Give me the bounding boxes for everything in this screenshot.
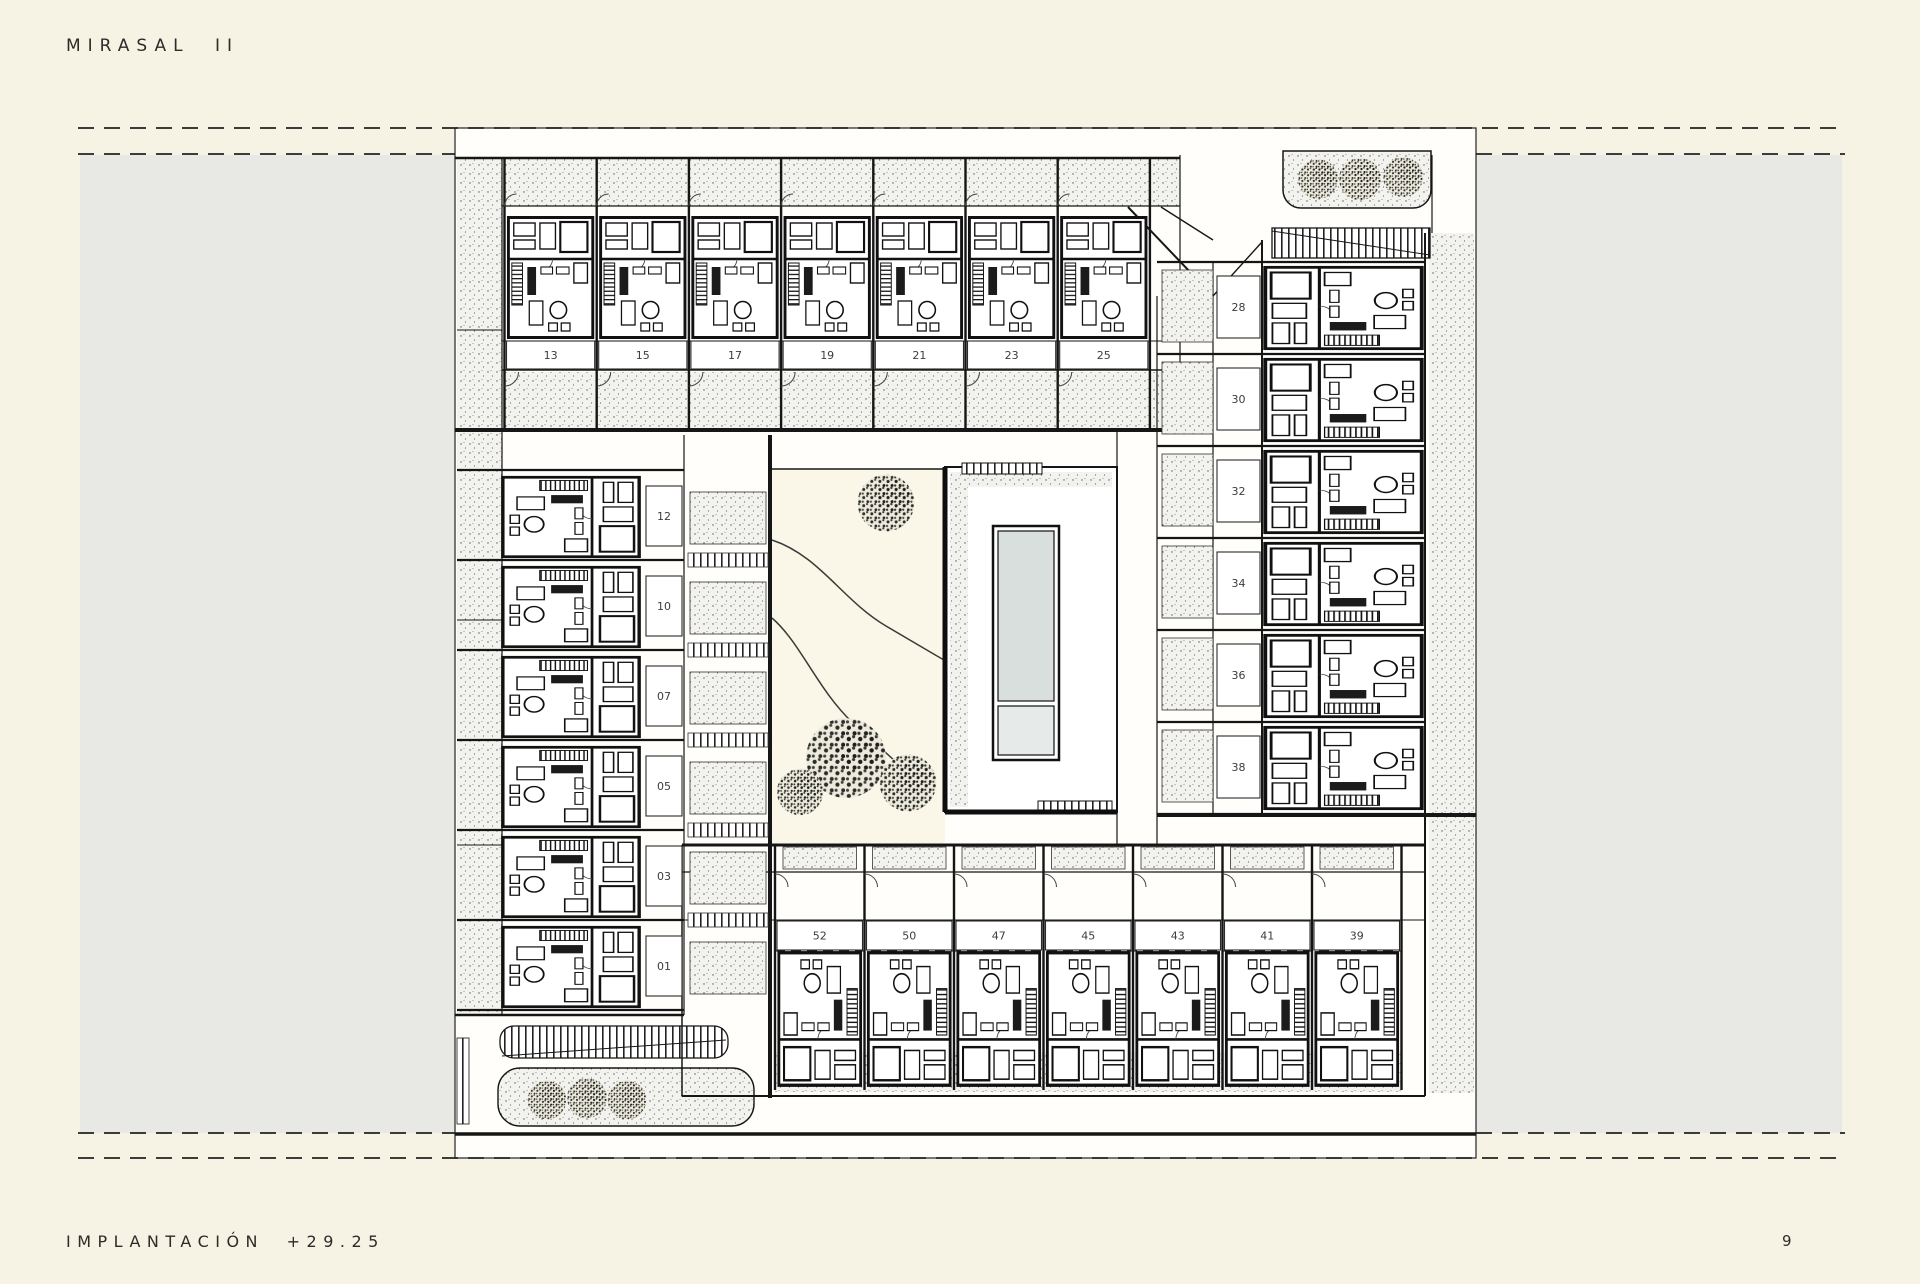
tree	[608, 1081, 647, 1120]
left-garden-strip	[457, 158, 502, 1015]
unit-floorplan-left	[503, 927, 639, 1006]
patio-cell	[1231, 847, 1305, 869]
tree	[567, 1078, 607, 1118]
patio-cell	[962, 847, 1036, 869]
unit-number: 13	[544, 349, 558, 362]
unit-number: 43	[1171, 930, 1185, 943]
unit-floorplan-left	[503, 567, 639, 646]
unit-number: 25	[1097, 349, 1111, 362]
patio-cell	[690, 492, 766, 544]
unit-floorplan-left	[503, 837, 639, 916]
unit-floorplan-top	[969, 218, 1053, 338]
patio-cell	[1162, 638, 1213, 710]
pool-water	[998, 531, 1054, 701]
unit-floorplan-top	[877, 218, 961, 338]
unit-floorplan-right	[1265, 359, 1421, 440]
unit-floorplan-bottom	[958, 953, 1040, 1085]
unit-number: 41	[1260, 930, 1274, 943]
patio-cell	[873, 847, 947, 869]
patio-cell	[783, 847, 857, 869]
unit-number: 17	[728, 349, 742, 362]
unit-number: 28	[1232, 301, 1246, 314]
top-lower-strip	[502, 372, 1180, 428]
unit-floorplan-right	[1265, 635, 1421, 716]
unit-number: 03	[657, 870, 671, 883]
patio-cell	[690, 852, 766, 904]
unit-number: 52	[813, 930, 827, 943]
unit-number: 23	[1005, 349, 1019, 362]
top-patio-strip	[502, 158, 1180, 206]
unit-floorplan-bottom	[1047, 953, 1129, 1085]
pool-pavilion	[945, 463, 1117, 812]
right-parcel-band	[1476, 155, 1842, 1133]
unit-floorplan-left	[503, 477, 639, 556]
unit-floorplan-left	[503, 657, 639, 736]
right-garden-strip	[1429, 233, 1474, 1093]
unit-floorplan-bottom	[779, 953, 861, 1085]
sheet-title: MIRASAL II	[66, 36, 239, 56]
unit-floorplan-right	[1265, 267, 1421, 348]
unit-number: 39	[1350, 930, 1364, 943]
unit-floorplan-left	[503, 747, 639, 826]
drawing-sheet: 1315171921232552504745434139121007050301…	[0, 0, 1920, 1280]
patio-cell	[1162, 546, 1213, 618]
patio-cell	[1162, 362, 1213, 434]
unit-floorplan-bottom	[1137, 953, 1219, 1085]
left-parcel-band	[80, 155, 455, 1133]
tree	[528, 1081, 567, 1120]
unit-number: 15	[636, 349, 650, 362]
unit-floorplan-right	[1265, 451, 1421, 532]
patio-cell	[690, 942, 766, 994]
unit-number: 05	[657, 780, 671, 793]
unit-number: 32	[1232, 485, 1246, 498]
patio-cell	[1320, 847, 1394, 869]
patio-cell	[1162, 454, 1213, 526]
patio-cell	[1162, 270, 1213, 342]
unit-number: 47	[992, 930, 1006, 943]
stair-hatch	[688, 553, 768, 567]
north-ramp	[1272, 228, 1430, 258]
unit-number: 30	[1232, 393, 1246, 406]
unit-floorplan-right	[1265, 727, 1421, 808]
unit-floorplan-top	[508, 218, 592, 338]
tree	[880, 755, 937, 812]
patio-cell	[690, 762, 766, 814]
tree	[777, 769, 823, 815]
stair-hatch	[688, 823, 768, 837]
unit-floorplan-top	[1062, 218, 1146, 338]
unit-floorplan-top	[693, 218, 777, 338]
stair-hatch	[688, 733, 768, 747]
site-plan-drawing: 1315171921232552504745434139121007050301…	[0, 0, 1920, 1280]
unit-number: 07	[657, 690, 671, 703]
patio-cell	[1162, 730, 1213, 802]
unit-floorplan-bottom	[1226, 953, 1308, 1085]
tree	[1298, 159, 1338, 199]
unit-number: 10	[657, 600, 671, 613]
unit-number: 36	[1232, 669, 1246, 682]
tree	[858, 475, 915, 532]
patio-cell	[1141, 847, 1215, 869]
page-number: 9	[1782, 1232, 1794, 1250]
patio-cell	[690, 672, 766, 724]
unit-number: 19	[820, 349, 834, 362]
pool-shallow	[998, 706, 1054, 755]
patio-cell	[1052, 847, 1126, 869]
unit-floorplan-bottom	[1316, 953, 1398, 1085]
unit-number: 38	[1232, 761, 1246, 774]
stair-hatch	[688, 643, 768, 657]
unit-number: 50	[902, 930, 916, 943]
unit-floorplan-top	[785, 218, 869, 338]
stair-hatch	[688, 913, 768, 927]
sheet-caption: IMPLANTACIÓN +29.25	[66, 1232, 385, 1251]
unit-floorplan-bottom	[868, 953, 950, 1085]
north-planting-bed	[1283, 151, 1431, 208]
unit-number: 34	[1232, 577, 1246, 590]
unit-floorplan-right	[1265, 543, 1421, 624]
tree	[1383, 157, 1423, 197]
unit-number: 12	[657, 510, 671, 523]
unit-number: 21	[912, 349, 926, 362]
patio-cell	[690, 582, 766, 634]
tree	[1339, 158, 1381, 200]
unit-number: 45	[1081, 930, 1095, 943]
unit-number: 01	[657, 960, 671, 973]
unit-floorplan-top	[601, 218, 685, 338]
